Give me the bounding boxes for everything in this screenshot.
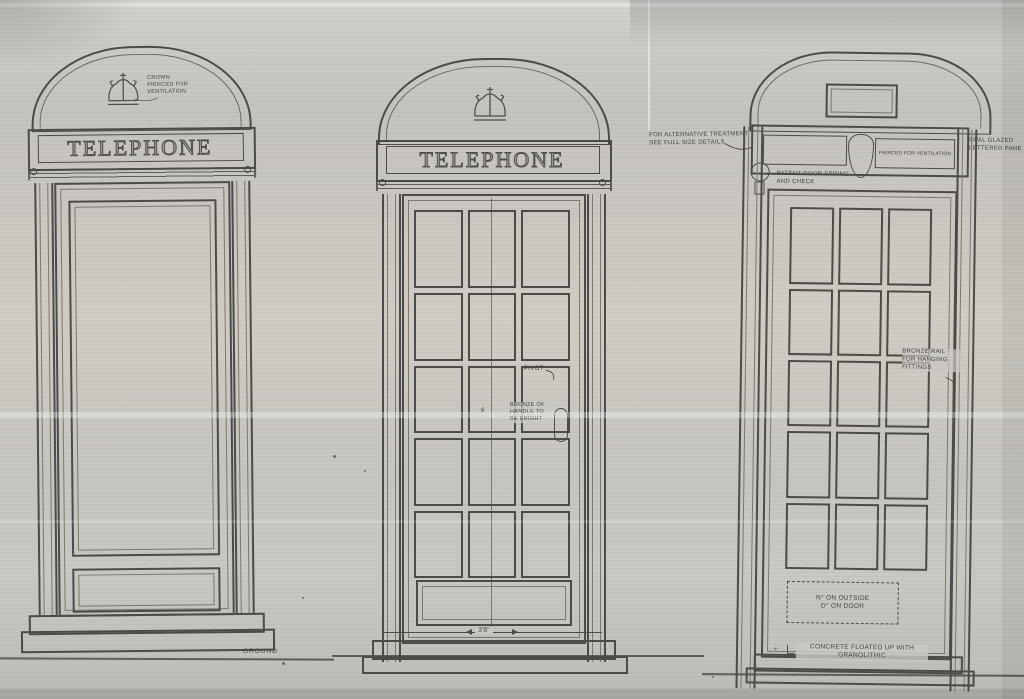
scanned-drawing-page: CROWN PIERCED FOR VENTILATION TELEPHONE …	[0, 0, 1024, 699]
glazing-pane	[414, 438, 463, 505]
glazing-pane	[414, 210, 463, 288]
scan-streak	[0, 520, 1024, 523]
glazing-pane	[521, 210, 570, 288]
ink-speck	[302, 597, 304, 599]
edge-shade	[0, 689, 1024, 699]
glazing-pane	[837, 290, 882, 357]
width-dimension-label: 3'6"	[475, 627, 493, 634]
ink-speck	[282, 662, 285, 665]
kiosk-right-plinth-lower	[746, 667, 975, 686]
telephone-sign-left: TELEPHONE	[38, 134, 242, 162]
kiosk-right-sign-panel-left	[763, 135, 847, 166]
telephone-sign-middle: TELEPHONE	[386, 147, 598, 173]
kiosk-middle-bottom-panel	[416, 580, 572, 626]
glazing-pane	[883, 504, 928, 571]
ink-speck	[333, 455, 336, 458]
kiosk-right-roof-panel	[825, 83, 897, 118]
glazing-pane	[835, 432, 880, 499]
glazing-pane	[786, 431, 831, 498]
kiosk-left-cornice	[28, 167, 256, 180]
glazing-pane	[788, 289, 833, 356]
kiosk-middle: TELEPHONE PIVOT BRONZE OF HANDLE TO BE B…	[368, 52, 616, 672]
kiosk-left-pilaster-right	[231, 181, 255, 613]
kiosk-middle-plinth-lower	[362, 656, 628, 674]
glazing-pane	[521, 293, 570, 360]
kiosk-right-sign-panel-right: PIERCED FOR VENTILATION	[875, 138, 955, 169]
corner-shade	[630, 0, 1024, 48]
kiosk-left-plinth-lower	[21, 629, 275, 654]
door-spring-note: PATENT DOOR SPRING AND CHECK	[776, 171, 868, 188]
leader-line	[544, 368, 560, 382]
rail-note: BRONZE RAIL FOR HANGING FITTINGS	[902, 349, 960, 373]
glazing-pane	[414, 366, 463, 433]
dimension-arrow-right-icon	[512, 629, 518, 635]
ink-speck	[712, 676, 714, 678]
reference-tick: +	[774, 647, 778, 655]
kiosk-right-glazing	[785, 207, 932, 571]
number-note: N° ON OUTSIDE D° ON DOOR	[816, 594, 870, 612]
glazing-pane	[789, 207, 834, 284]
kiosk-right-wall-left	[735, 126, 763, 688]
ventilation-note: PIERCED FOR VENTILATION	[879, 150, 952, 158]
scan-streak	[0, 412, 1024, 418]
ground-label: GROUND	[243, 648, 278, 656]
kiosk-left-bottom-panel	[72, 567, 220, 613]
glazing-pane	[886, 290, 931, 357]
corner-shade	[0, 0, 140, 70]
glazing-pane	[521, 438, 570, 505]
glazing-pane	[884, 433, 929, 500]
leader-line	[944, 375, 960, 391]
kiosk-middle-cornice	[376, 180, 612, 191]
crown-icon	[464, 82, 516, 124]
concrete-note: CONCRETE FLOATED UP WITH GRANOLITHIC	[796, 643, 928, 662]
number-plate-outline: N° ON OUTSIDE D° ON DOOR	[786, 581, 899, 625]
edge-shade	[1002, 0, 1024, 699]
kiosk-middle-pilaster-right	[587, 194, 606, 662]
kiosk-middle-pilaster-left	[382, 194, 401, 662]
ground-line-middle	[332, 655, 704, 657]
kiosk-left-main-panel	[68, 199, 220, 557]
glazing-pane	[887, 208, 932, 285]
crown-note: CROWN PIERCED FOR VENTILATION	[147, 74, 213, 96]
ink-speck	[364, 470, 366, 472]
glazing-pane	[414, 293, 463, 360]
kiosk-right: PIERCED FOR VENTILATION FOR ALTERNATIVE …	[724, 46, 1003, 686]
dimension-arrow-left-icon	[466, 629, 472, 635]
glazing-pane	[838, 208, 883, 285]
glazing-pane	[785, 503, 830, 570]
glazing-pane	[834, 503, 879, 570]
leader-line	[784, 643, 796, 657]
kiosk-left: CROWN PIERCED FOR VENTILATION TELEPHONE	[15, 41, 271, 666]
